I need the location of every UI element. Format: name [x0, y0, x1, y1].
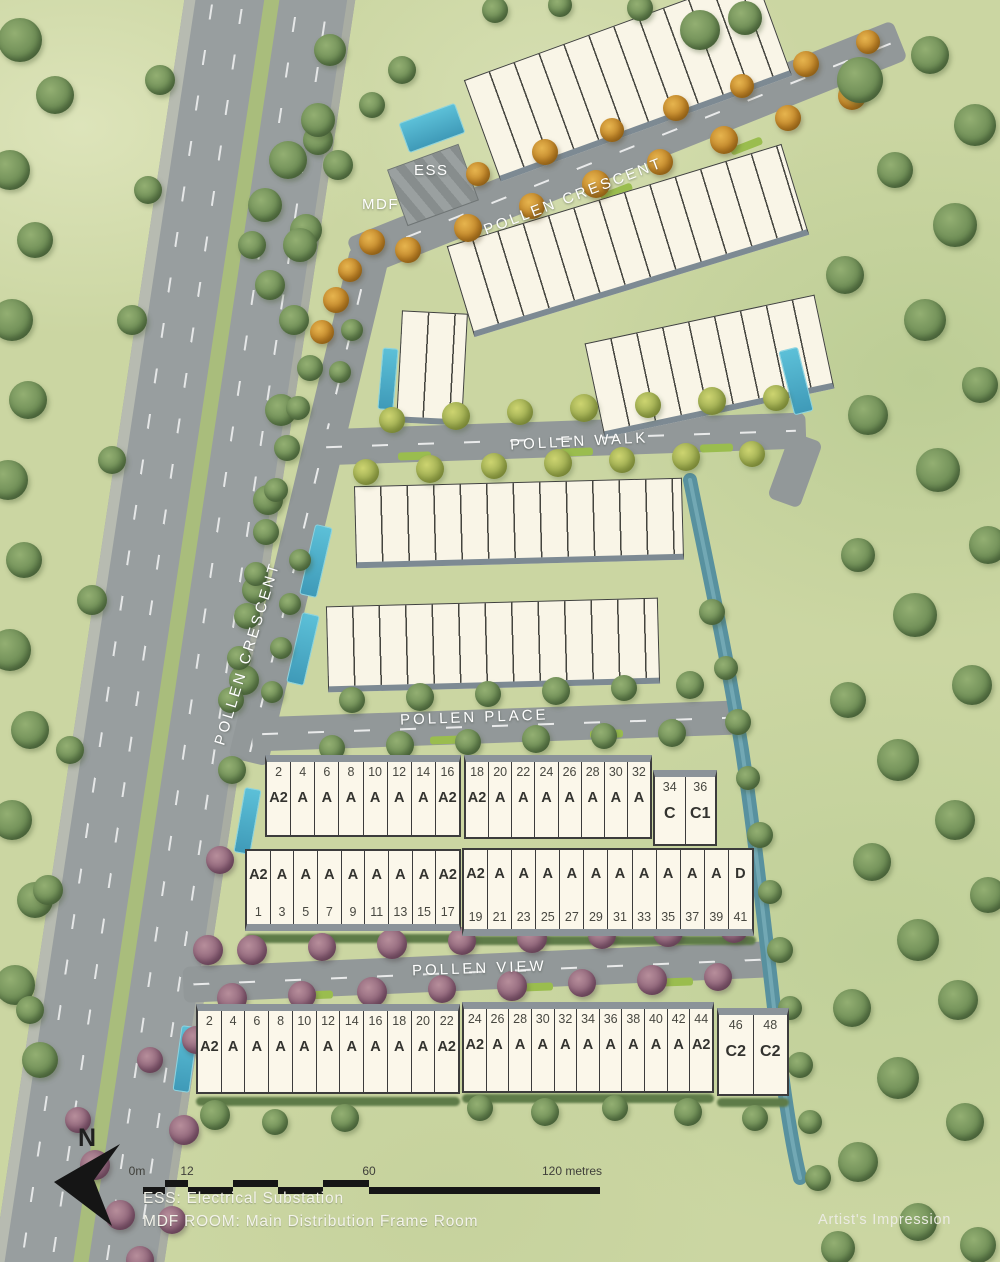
mdf-label: MDF: [362, 196, 399, 213]
tree: [286, 396, 310, 420]
tree: [637, 965, 667, 995]
lot-type: A: [492, 1037, 502, 1053]
lot-number: 39: [709, 910, 723, 924]
lot-c_left-8: 8A: [268, 1011, 292, 1092]
lot-b_left-9: A9: [341, 851, 365, 924]
lot-number: 24: [468, 1012, 482, 1026]
tree: [314, 34, 346, 66]
lot-block-b_left: A21A3A5A7A9A11A13A15A217: [245, 849, 461, 931]
tree: [758, 880, 782, 904]
tree: [134, 176, 162, 204]
tree: [255, 270, 285, 300]
lot-type: A: [591, 866, 601, 882]
legend-mdf: MDF ROOM: Main Distribution Frame Room: [143, 1210, 478, 1233]
tree: [848, 395, 888, 435]
lot-a_left-16: 16A2: [435, 762, 459, 835]
lot-c_left-18: 18A: [387, 1011, 411, 1092]
tree: [301, 103, 335, 137]
lot-c_mid-44: 44A2: [689, 1009, 712, 1091]
lot-number: 22: [516, 765, 530, 779]
tree: [145, 65, 175, 95]
lot-number: 2: [275, 765, 282, 779]
lot-number: 13: [393, 905, 407, 919]
tree: [531, 1098, 559, 1126]
lot-number: 20: [493, 765, 507, 779]
lot-type: A: [323, 1039, 333, 1055]
lot-type: A: [297, 790, 307, 806]
lot-type: A2: [437, 1039, 456, 1055]
tree: [117, 305, 147, 335]
tree: [98, 446, 126, 474]
tree: [455, 729, 481, 755]
tree: [406, 683, 434, 711]
lot-block-a_left: 2A24A6A8A10A12A14A16A2: [265, 755, 461, 837]
tree: [837, 57, 883, 103]
lot-type: A: [371, 867, 381, 883]
tree: [274, 435, 300, 461]
tree: [833, 989, 871, 1027]
tree: [933, 203, 977, 247]
lot-number: 6: [323, 765, 330, 779]
tree: [954, 104, 996, 146]
lot-c_left-20: 20A: [411, 1011, 435, 1092]
lot-number: 9: [350, 905, 357, 919]
tree: [357, 977, 387, 1007]
tree: [428, 975, 456, 1003]
lot-block-c_right: 46C248C2: [717, 1008, 789, 1096]
lot-number: 18: [470, 765, 484, 779]
lot-number: 26: [491, 1012, 505, 1026]
lot-number: 28: [586, 765, 600, 779]
lot-a_left-6: 6A: [314, 762, 338, 835]
lot-b_right-23: A23: [511, 850, 535, 929]
ess-label: ESS: [414, 162, 449, 179]
tree: [742, 1105, 768, 1131]
lot-number: 48: [763, 1018, 777, 1032]
lot-a_right-32: 32A: [627, 762, 650, 837]
lot-type: A: [252, 1039, 262, 1055]
tree: [338, 258, 362, 282]
tree: [938, 980, 978, 1020]
lot-c_mid-28: 28A: [508, 1009, 531, 1091]
north-arrow-icon: [52, 1136, 132, 1231]
lot-number: 4: [299, 765, 306, 779]
site-plan: POLLEN CRESCENT POLLEN CRESCENT POLLEN W…: [0, 0, 1000, 1262]
tree: [283, 228, 317, 262]
lot-number: 23: [517, 910, 531, 924]
lot-number: 11: [370, 905, 383, 919]
tree: [532, 139, 558, 165]
lot-number: 12: [392, 765, 406, 779]
lot-block-c_mid: 24A226A28A30A32A34A36A38A40A42A44A2: [462, 1002, 714, 1093]
lot-type: A2: [200, 1039, 219, 1055]
tree: [248, 188, 282, 222]
lot-c_left-14: 14A: [339, 1011, 363, 1092]
lot-type: A: [395, 867, 405, 883]
lot-type: A: [495, 790, 505, 806]
tree: [826, 256, 864, 294]
tree: [602, 1095, 628, 1121]
tree: [877, 739, 919, 781]
tree: [725, 709, 751, 735]
lot-type: A: [711, 866, 721, 882]
lot-c_mid-34: 34A: [576, 1009, 599, 1091]
tree: [238, 231, 266, 259]
lot-number: 12: [321, 1014, 335, 1028]
tree: [698, 387, 726, 415]
lot-b_right-21: A21: [487, 850, 511, 929]
lot-number: 36: [693, 780, 707, 794]
lot-number: 19: [469, 910, 483, 924]
tree: [0, 18, 42, 62]
lot-a_right-24: 24A: [534, 762, 557, 837]
hedge: [196, 1097, 460, 1106]
tree: [264, 478, 288, 502]
lot-type: A: [518, 790, 528, 806]
lot-number: 36: [604, 1012, 618, 1026]
tree: [353, 459, 379, 485]
tree: [960, 1227, 996, 1262]
lot-type: A: [628, 1037, 638, 1053]
lot-type: A: [583, 1037, 593, 1053]
lot-a_left-2: 2A2: [267, 762, 290, 835]
tree: [893, 593, 937, 637]
tree: [952, 665, 992, 705]
lot-number: 2: [206, 1014, 213, 1028]
tree: [200, 1100, 230, 1130]
lot-a_left-12: 12A: [387, 762, 411, 835]
lot-number: 16: [369, 1014, 383, 1028]
legend-ess: ESS: Electrical Substation: [143, 1187, 478, 1210]
lot-a_right-26: 26A: [558, 762, 581, 837]
lot-a_right-18: 18A2: [466, 762, 488, 837]
lot-type: A: [275, 1039, 285, 1055]
tree: [279, 305, 309, 335]
lot-type: A2: [438, 867, 457, 883]
lot-type: A: [324, 867, 334, 883]
lot-type: A: [299, 1039, 309, 1055]
tree: [838, 1142, 878, 1182]
tree: [475, 681, 501, 707]
lot-type: A: [560, 1037, 570, 1053]
lot-number: 4: [230, 1014, 237, 1028]
scale-tick: 0m: [129, 1164, 146, 1178]
lot-type: A: [515, 1037, 525, 1053]
tree: [329, 361, 351, 383]
lot-type: A: [518, 866, 528, 882]
lot-type: A: [228, 1039, 238, 1055]
lot-b_left-1: A21: [247, 851, 270, 924]
lot-number: 5: [302, 905, 309, 919]
lot-b_left-13: A13: [388, 851, 412, 924]
lot-c_left-6: 6A: [244, 1011, 268, 1092]
artists-impression-label: Artist's Impression: [818, 1212, 951, 1228]
lot-type: A: [651, 1037, 661, 1053]
lot-type: C1: [690, 805, 710, 823]
lot-number: 25: [541, 910, 555, 924]
tree: [663, 95, 689, 121]
tree: [609, 447, 635, 473]
lot-type: A: [494, 866, 504, 882]
tree: [261, 681, 283, 703]
lot-type: A2: [466, 866, 485, 882]
lot-type: A2: [466, 1037, 485, 1053]
tree: [22, 1042, 58, 1078]
lot-number: 14: [416, 765, 430, 779]
lot-number: 20: [416, 1014, 430, 1028]
lot-c_mid-32: 32A: [554, 1009, 577, 1091]
lot-b_right-31: A31: [607, 850, 631, 929]
scale-segment: [165, 1180, 188, 1187]
tree: [297, 355, 323, 381]
lot-number: 31: [613, 910, 627, 924]
tree: [916, 448, 960, 492]
scale-tick: 120 metres: [542, 1164, 602, 1178]
lot-a_right-30: 30A: [604, 762, 627, 837]
tree: [568, 969, 596, 997]
lot-type: A: [639, 866, 649, 882]
tree: [253, 519, 279, 545]
tree: [911, 36, 949, 74]
lot-b_right-39: A39: [704, 850, 728, 929]
tree: [467, 1095, 493, 1121]
lot-type: A: [370, 1039, 380, 1055]
tree: [395, 237, 421, 263]
tree: [591, 723, 617, 749]
tree: [388, 56, 416, 84]
tree: [787, 1052, 813, 1078]
tree: [544, 449, 572, 477]
tree: [269, 141, 307, 179]
lot-number: 27: [565, 910, 579, 924]
tree: [600, 118, 624, 142]
tree: [672, 443, 700, 471]
lot-number: 41: [733, 910, 747, 924]
lot-a_cc-34: 34C: [655, 777, 685, 844]
tree: [308, 933, 336, 961]
lot-number: 16: [440, 765, 454, 779]
lot-type: A: [277, 867, 287, 883]
tree: [11, 711, 49, 749]
lot-number: 37: [685, 910, 699, 924]
lot-number: 38: [626, 1012, 640, 1026]
lot-number: 14: [345, 1014, 359, 1028]
tree: [798, 1110, 822, 1134]
tree: [379, 407, 405, 433]
lot-number: 22: [440, 1014, 454, 1028]
terrace-row: [354, 478, 684, 569]
lot-number: 46: [729, 1018, 743, 1032]
lot-a_right-22: 22A: [511, 762, 534, 837]
tree: [359, 229, 385, 255]
lot-b_right-29: A29: [583, 850, 607, 929]
lot-type: A: [300, 867, 310, 883]
scale-tick: 12: [180, 1164, 193, 1178]
lot-type: A2: [249, 867, 268, 883]
tree: [897, 919, 939, 961]
tree: [9, 381, 47, 419]
lot-number: 40: [649, 1012, 663, 1026]
tree: [279, 593, 301, 615]
lot-number: 30: [609, 765, 623, 779]
tree: [841, 538, 875, 572]
lot-number: 32: [558, 1012, 572, 1026]
tree: [323, 150, 353, 180]
lot-type: A: [394, 1039, 404, 1055]
tree: [714, 656, 738, 680]
lot-c_mid-30: 30A: [531, 1009, 554, 1091]
lot-number: 3: [279, 905, 286, 919]
lot-type: A: [611, 790, 621, 806]
tree: [339, 687, 365, 713]
lot-type: A: [541, 790, 551, 806]
tree: [33, 875, 63, 905]
lot-type: A: [347, 1039, 357, 1055]
tree: [206, 846, 234, 874]
tree: [970, 877, 1000, 913]
lot-type: A: [663, 866, 673, 882]
lot-number: 33: [637, 910, 651, 924]
lot-c_mid-38: 38A: [621, 1009, 644, 1091]
tree: [359, 92, 385, 118]
lot-a_left-4: 4A: [290, 762, 314, 835]
tree: [793, 51, 819, 77]
lot-number: 10: [368, 765, 382, 779]
tree: [507, 399, 533, 425]
tree: [728, 1, 762, 35]
lot-number: 32: [632, 765, 646, 779]
lot-number: 29: [589, 910, 603, 924]
lot-c_left-4: 4A: [221, 1011, 245, 1092]
tree: [962, 367, 998, 403]
lot-c_left-22: 22A2: [434, 1011, 458, 1092]
lot-a_left-8: 8A: [338, 762, 362, 835]
lot-b_right-37: A37: [680, 850, 704, 929]
tree: [635, 392, 661, 418]
lot-type: A: [615, 866, 625, 882]
lot-b_left-15: A15: [412, 851, 436, 924]
scale-segment: [233, 1180, 278, 1187]
hedge: [462, 1094, 714, 1103]
tree: [323, 287, 349, 313]
lot-b_left-5: A5: [293, 851, 317, 924]
lot-a_left-14: 14A: [411, 762, 435, 835]
tree: [935, 800, 975, 840]
tree: [763, 385, 789, 411]
lot-number: 24: [539, 765, 553, 779]
tree: [289, 549, 311, 571]
lot-number: 30: [536, 1012, 550, 1026]
tree: [946, 1103, 984, 1141]
lot-c_left-12: 12A: [316, 1011, 340, 1092]
tree: [310, 320, 334, 344]
lot-type: A: [348, 867, 358, 883]
lot-number: 34: [663, 780, 677, 794]
tree: [341, 319, 363, 341]
tree: [710, 126, 738, 154]
tree: [805, 1165, 831, 1191]
lot-b_left-3: A3: [270, 851, 294, 924]
lot-type: A: [322, 790, 332, 806]
tree: [17, 222, 53, 258]
lot-number: 18: [392, 1014, 406, 1028]
tree: [331, 1104, 359, 1132]
lot-a_cc-36: 36C1: [685, 777, 716, 844]
scale-segment: [323, 1180, 369, 1187]
lot-number: 42: [672, 1012, 686, 1026]
lot-number: 8: [347, 765, 354, 779]
lot-type: A2: [692, 1037, 711, 1053]
lot-c_right-48: 48C2: [753, 1015, 788, 1094]
hedge: [245, 934, 461, 943]
scale-tick: 60: [362, 1164, 375, 1178]
tree: [699, 599, 725, 625]
tree: [676, 671, 704, 699]
tree: [466, 162, 490, 186]
tree: [730, 74, 754, 98]
lot-c_mid-40: 40A: [644, 1009, 667, 1091]
lot-b_right-33: A33: [632, 850, 656, 929]
tree: [36, 76, 74, 114]
lot-type: A: [394, 790, 404, 806]
tree: [377, 929, 407, 959]
lot-b_right-41: D41: [728, 850, 752, 929]
lot-a_left-10: 10A: [363, 762, 387, 835]
lot-type: D: [735, 866, 745, 882]
tree: [767, 937, 793, 963]
tree: [542, 677, 570, 705]
lot-type: A: [564, 790, 574, 806]
legend: ESS: Electrical Substation MDF ROOM: Mai…: [143, 1187, 478, 1233]
lot-type: A2: [468, 790, 487, 806]
tree: [6, 542, 42, 578]
tree: [481, 453, 507, 479]
lot-number: 8: [277, 1014, 284, 1028]
lot-c_right-46: 46C2: [719, 1015, 753, 1094]
tree: [16, 996, 44, 1024]
lot-c_left-2: 2A2: [198, 1011, 221, 1092]
lot-type: A: [567, 866, 577, 882]
lot-type: A: [538, 1037, 548, 1053]
tree: [570, 394, 598, 422]
tree: [877, 1057, 919, 1099]
lot-b_left-7: A7: [317, 851, 341, 924]
lot-block-a_cc: 34C36C1: [653, 770, 717, 846]
lot-type: C2: [726, 1043, 746, 1061]
lot-number: 17: [441, 905, 455, 919]
lot-number: 44: [694, 1012, 708, 1026]
tree: [442, 402, 470, 430]
tree: [193, 935, 223, 965]
tree: [56, 736, 84, 764]
tree: [658, 719, 686, 747]
lot-block-c_left: 2A24A6A8A10A12A14A16A18A20A22A2: [196, 1004, 460, 1094]
lot-a_right-20: 20A: [488, 762, 511, 837]
tree: [969, 526, 1000, 564]
lot-type: A: [634, 790, 644, 806]
lot-b_left-17: A217: [435, 851, 459, 924]
lot-b_right-25: A25: [535, 850, 559, 929]
tree: [830, 682, 866, 718]
lot-b_right-27: A27: [559, 850, 583, 929]
lot-c_left-10: 10A: [292, 1011, 316, 1092]
tree: [262, 1109, 288, 1135]
lot-number: 34: [581, 1012, 595, 1026]
tree: [853, 843, 891, 881]
terrace-row: [326, 598, 660, 693]
lot-number: 1: [255, 905, 262, 919]
lot-type: A: [673, 1037, 683, 1053]
